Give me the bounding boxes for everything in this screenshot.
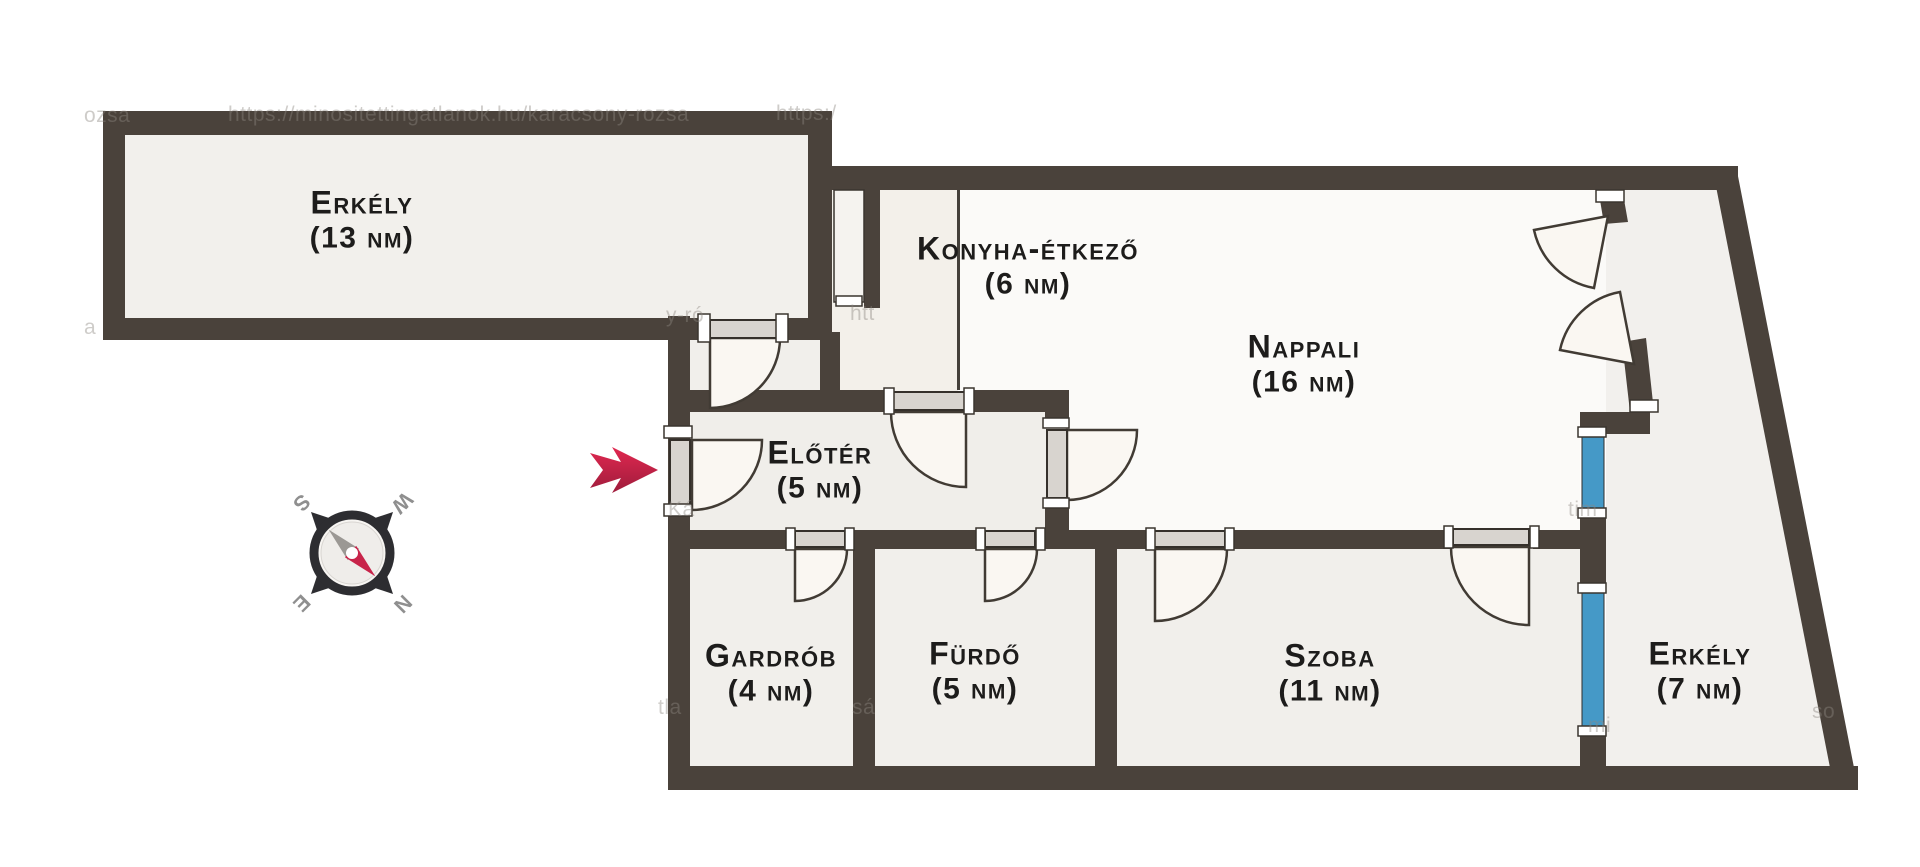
label-erkely-7: Erkély (7 nm): [1649, 636, 1752, 707]
compass-letter-e: E: [288, 590, 314, 616]
szoba-door-left-slab: [1153, 531, 1225, 547]
nappali-door-slab: [1047, 430, 1067, 498]
label-nappali: Nappali (16 nm): [1248, 329, 1361, 400]
room-area: (4 nm): [705, 675, 837, 709]
room-name: Konyha-étkező: [917, 231, 1139, 268]
watermark-fragment: y-ró: [666, 304, 704, 328]
label-gardrob: Gardrób (4 nm): [705, 638, 837, 709]
kitchen-niche: [834, 190, 864, 302]
room-area: (5 nm): [768, 472, 873, 506]
room-name: Nappali: [1248, 329, 1361, 366]
watermark-fragment: Ká: [668, 498, 695, 522]
room-area: (11 nm): [1278, 675, 1381, 709]
watermark-fragment: sá: [852, 696, 875, 720]
watermark-fragment: so: [1812, 700, 1835, 724]
watermark-fragment: mi: [1588, 714, 1611, 738]
floorplan-page: N E S W Erkély (13 nm) Konyha-étkező (6 …: [0, 0, 1920, 867]
watermark-fragment: ozsa: [84, 104, 130, 128]
room-area: (13 nm): [310, 222, 415, 256]
compass-letter-n: N: [389, 590, 416, 617]
room-area: (6 nm): [917, 268, 1139, 302]
room-name: Szoba: [1278, 638, 1381, 675]
room-name: Gardrób: [705, 638, 837, 675]
room-area: (16 nm): [1248, 366, 1361, 400]
kitchen-door-slab: [893, 392, 966, 410]
entrance-arrow-icon: [590, 447, 658, 493]
watermark-fragment: htt: [850, 302, 875, 326]
room-name: Előtér: [768, 435, 873, 472]
watermark-fragment: tla: [658, 696, 682, 720]
room-name: Erkély: [310, 185, 415, 222]
room-area: (7 nm): [1649, 673, 1752, 707]
balcony13-door-slab: [710, 320, 778, 338]
room-area: (5 nm): [929, 673, 1021, 707]
compass-letter-s: S: [288, 489, 314, 515]
watermark-fragment: a: [84, 316, 96, 340]
watermark-fragment: tim: [1568, 498, 1598, 522]
room-name: Fürdő: [929, 636, 1021, 673]
floor-erkely-13: [125, 133, 810, 320]
entry-door-slab: [670, 440, 690, 506]
label-szoba: Szoba (11 nm): [1278, 638, 1381, 709]
compass-rose: N E S W: [238, 437, 468, 667]
label-furdo: Fürdő (5 nm): [929, 636, 1021, 707]
floorplan-drawing: N E S W: [0, 0, 1920, 867]
watermark-fragment: https:/: [776, 102, 837, 126]
label-eloter: Előtér (5 nm): [768, 435, 873, 506]
szoba-door-right-slab: [1453, 529, 1529, 545]
furdo-door-slab: [985, 531, 1035, 547]
gardrob-door-slab: [795, 531, 845, 547]
szoba-window: [1582, 592, 1604, 728]
label-erkely-13: Erkély (13 nm): [310, 185, 415, 256]
label-konyha: Konyha-étkező (6 nm): [917, 231, 1139, 302]
room-name: Erkély: [1649, 636, 1752, 673]
watermark-url: https://minositettingatlanok.hu/karacson…: [228, 103, 689, 127]
